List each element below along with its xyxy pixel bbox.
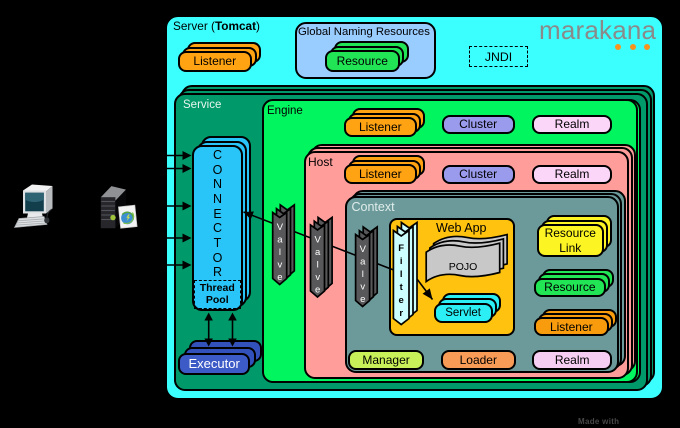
svg-text:V: V [277, 222, 284, 233]
svg-text:F: F [398, 243, 404, 254]
svg-text:V: V [315, 235, 322, 246]
svg-text:V: V [360, 244, 367, 255]
svg-text:a: a [315, 247, 321, 258]
svg-text:v: v [360, 282, 365, 293]
svg-text:e: e [360, 294, 365, 305]
svg-text:l: l [400, 269, 403, 280]
svg-text:r: r [399, 308, 403, 319]
svg-text:v: v [315, 272, 320, 283]
svg-text:l: l [317, 260, 319, 271]
svg-text:e: e [277, 272, 282, 283]
svg-text:i: i [400, 256, 403, 267]
svg-text:e: e [399, 295, 404, 306]
svg-text:POJO: POJO [449, 261, 478, 273]
svg-text:l: l [362, 269, 364, 280]
svg-text:a: a [360, 257, 366, 268]
svg-text:a: a [277, 235, 283, 246]
svg-text:e: e [315, 285, 320, 296]
svg-text:l: l [279, 247, 281, 258]
svg-text:v: v [278, 260, 283, 271]
